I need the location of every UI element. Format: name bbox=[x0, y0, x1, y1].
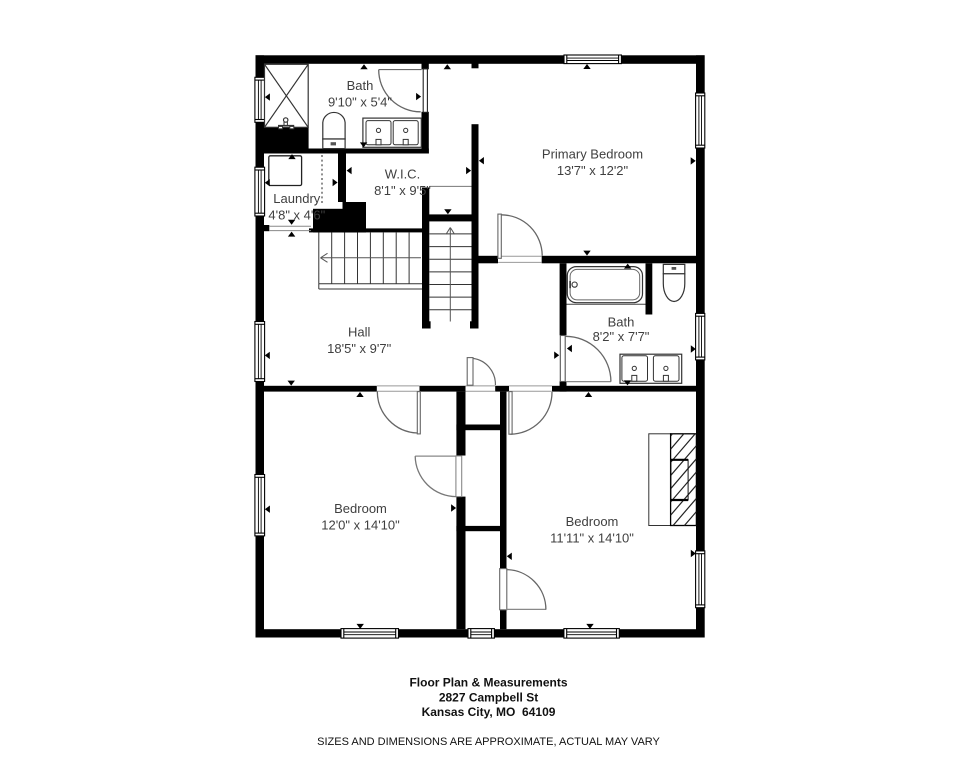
svg-text:8'2" x 7'7": 8'2" x 7'7" bbox=[593, 329, 650, 344]
svg-text:Bedroom: Bedroom bbox=[334, 501, 387, 516]
svg-text:Kansas City, MO 64109: Kansas City, MO 64109 bbox=[422, 705, 556, 719]
svg-text:Bath: Bath bbox=[347, 78, 374, 93]
svg-text:Bedroom: Bedroom bbox=[566, 514, 619, 529]
svg-text:2827 Campbell St: 2827 Campbell St bbox=[439, 690, 538, 704]
svg-text:12'0" x 14'10": 12'0" x 14'10" bbox=[321, 518, 400, 533]
svg-text:Bath: Bath bbox=[608, 314, 635, 329]
svg-text:SIZES AND DIMENSIONS ARE APPRO: SIZES AND DIMENSIONS ARE APPROXIMATE, AC… bbox=[317, 736, 660, 748]
svg-text:13'7" x 12'2": 13'7" x 12'2" bbox=[557, 163, 629, 178]
svg-text:18'5" x 9'7": 18'5" x 9'7" bbox=[327, 341, 391, 356]
svg-text:Floor Plan & Measurements: Floor Plan & Measurements bbox=[409, 676, 567, 690]
svg-text:4'8" x 4'6": 4'8" x 4'6" bbox=[268, 208, 325, 223]
svg-text:Hall: Hall bbox=[348, 324, 371, 339]
svg-text:Laundry: Laundry bbox=[273, 191, 320, 206]
svg-text:8'1" x 9'5": 8'1" x 9'5" bbox=[374, 183, 431, 198]
svg-text:W.I.C.: W.I.C. bbox=[385, 166, 420, 181]
svg-text:11'11" x 14'10": 11'11" x 14'10" bbox=[550, 530, 634, 545]
svg-text:Primary Bedroom: Primary Bedroom bbox=[542, 147, 643, 162]
svg-text:9'10" x 5'4": 9'10" x 5'4" bbox=[328, 94, 392, 109]
